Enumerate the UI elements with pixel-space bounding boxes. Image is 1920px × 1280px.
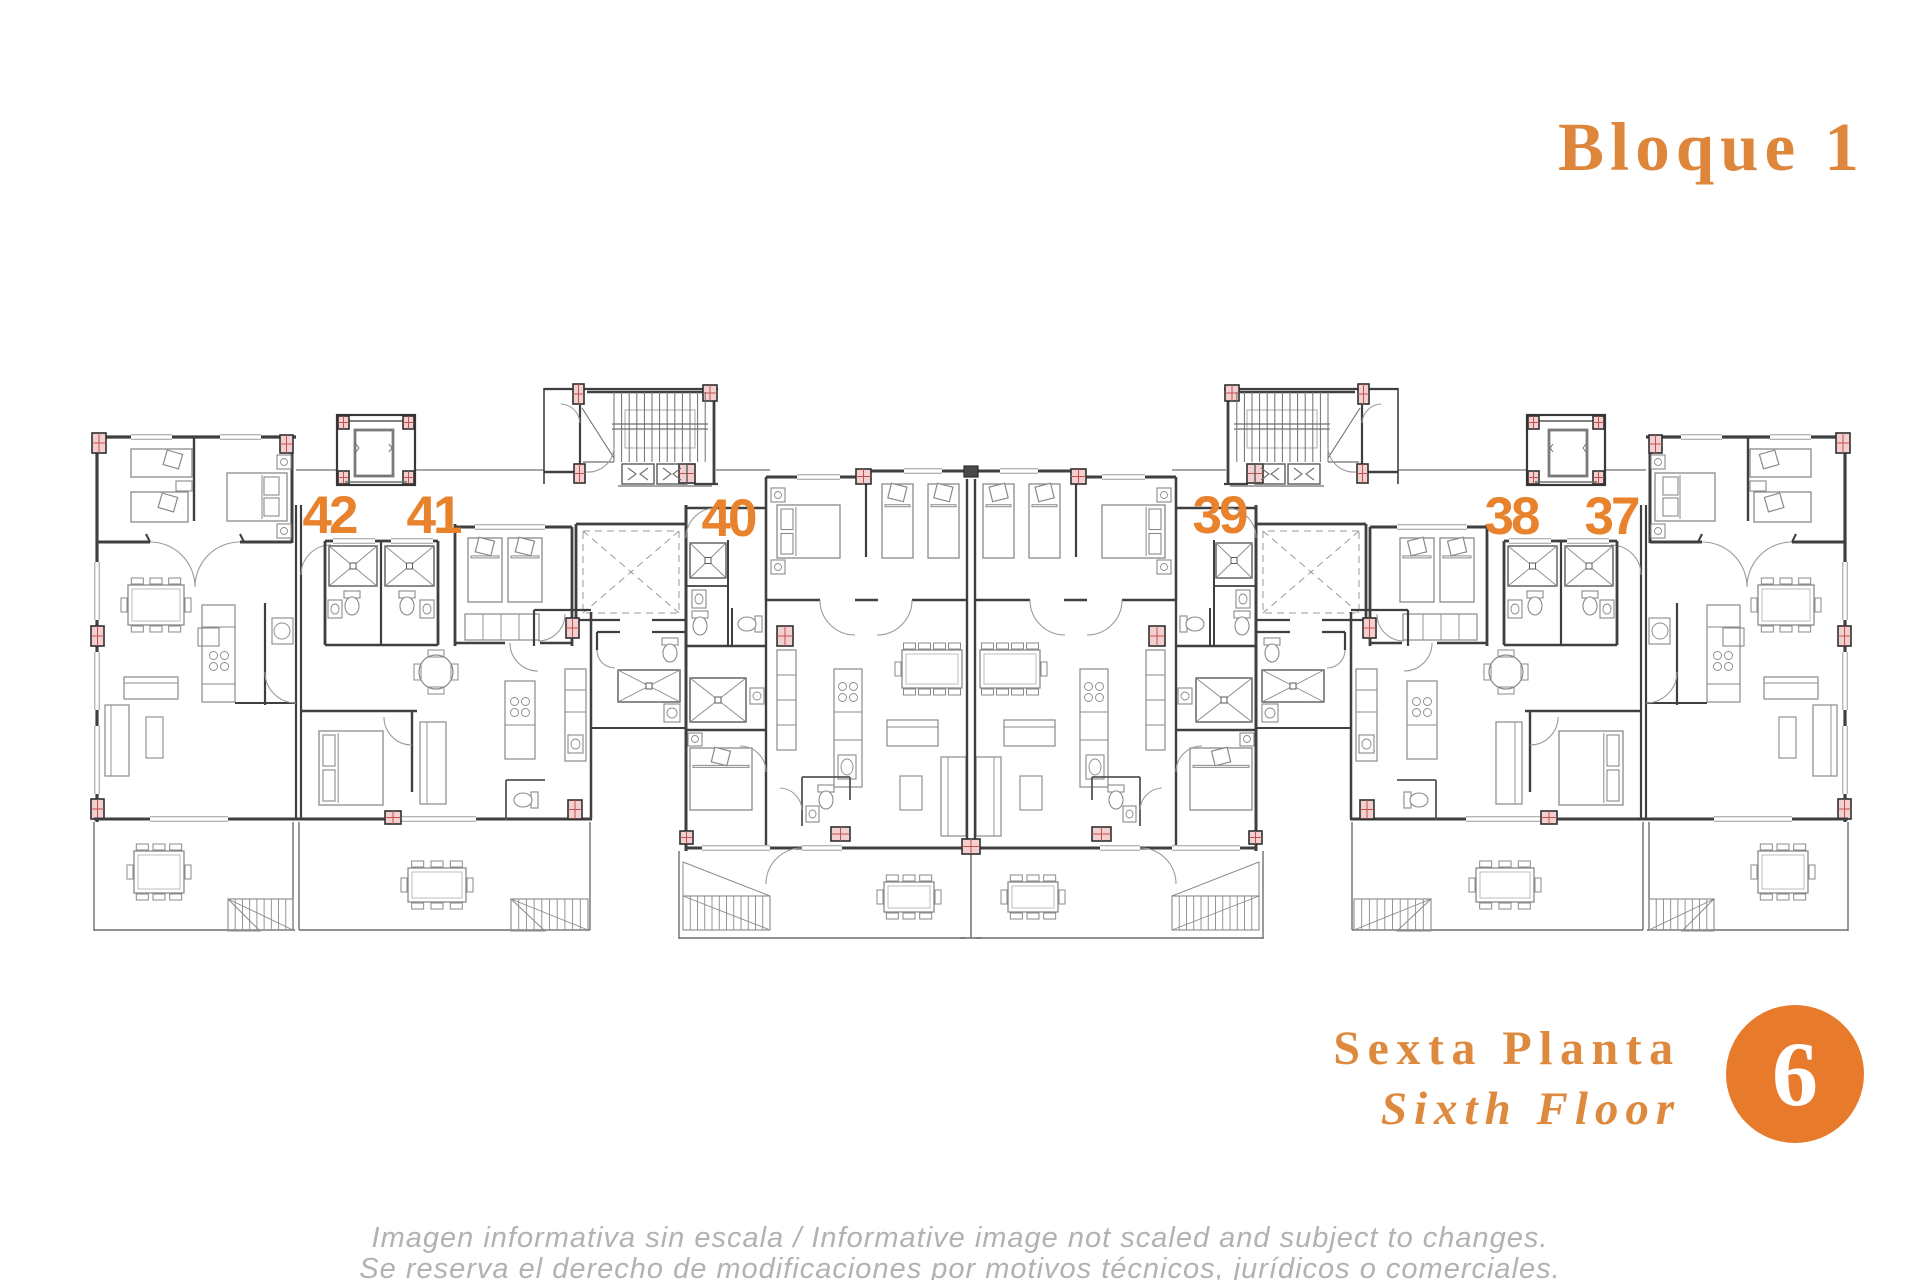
svg-text:41: 41 [407,486,461,545]
svg-text:Sixth Floor: Sixth Floor [1381,1083,1681,1135]
svg-text:Sexta Planta: Sexta Planta [1333,1022,1680,1075]
svg-text:38: 38 [1485,487,1539,546]
svg-text:42: 42 [303,486,357,545]
svg-text:37: 37 [1585,487,1639,546]
svg-text:6: 6 [1772,1023,1818,1125]
svg-text:Bloque 1: Bloque 1 [1558,109,1865,185]
svg-text:39: 39 [1193,486,1247,545]
svg-text:Imagen informativa sin escala: Imagen informativa sin escala / Informat… [372,1222,1549,1254]
svg-text:Se reserva el derecho de modif: Se reserva el derecho de modificaciones … [359,1253,1560,1280]
svg-text:40: 40 [702,489,756,548]
